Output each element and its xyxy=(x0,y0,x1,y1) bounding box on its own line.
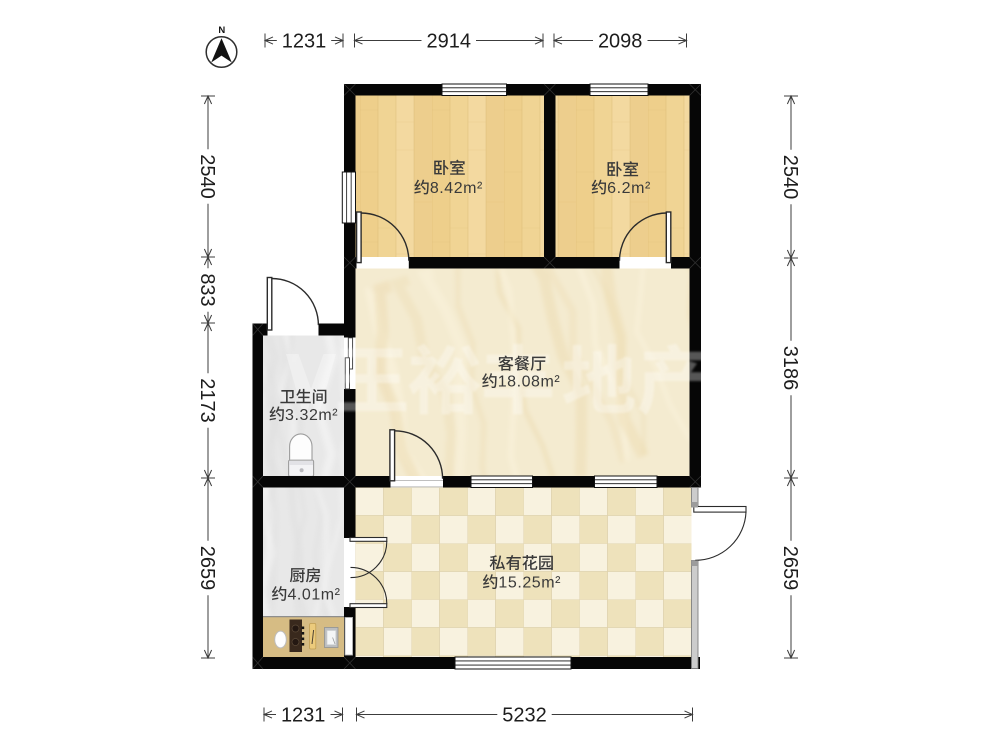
svg-text:2914: 2914 xyxy=(427,31,472,53)
svg-text:18.08m²: 18.08m² xyxy=(498,374,561,391)
svg-text:2540: 2540 xyxy=(779,155,801,200)
svg-text:2173: 2173 xyxy=(196,378,218,423)
svg-text:3186: 3186 xyxy=(779,346,801,391)
svg-text:833: 833 xyxy=(196,273,218,306)
svg-text:5232: 5232 xyxy=(502,705,547,727)
svg-text:8.42m²: 8.42m² xyxy=(430,180,483,197)
svg-text:2659: 2659 xyxy=(196,546,218,591)
svg-text:6.2m²: 6.2m² xyxy=(607,180,651,197)
svg-text:2659: 2659 xyxy=(779,546,801,591)
svg-text:2540: 2540 xyxy=(196,154,218,199)
svg-text:2098: 2098 xyxy=(598,31,643,53)
svg-text:1231: 1231 xyxy=(281,705,326,727)
svg-text:1231: 1231 xyxy=(282,31,327,53)
svg-text:N: N xyxy=(218,25,225,36)
svg-text:15.25m²: 15.25m² xyxy=(498,575,561,592)
svg-text:3.32m²: 3.32m² xyxy=(285,407,338,424)
svg-text:4.01m²: 4.01m² xyxy=(287,587,340,604)
